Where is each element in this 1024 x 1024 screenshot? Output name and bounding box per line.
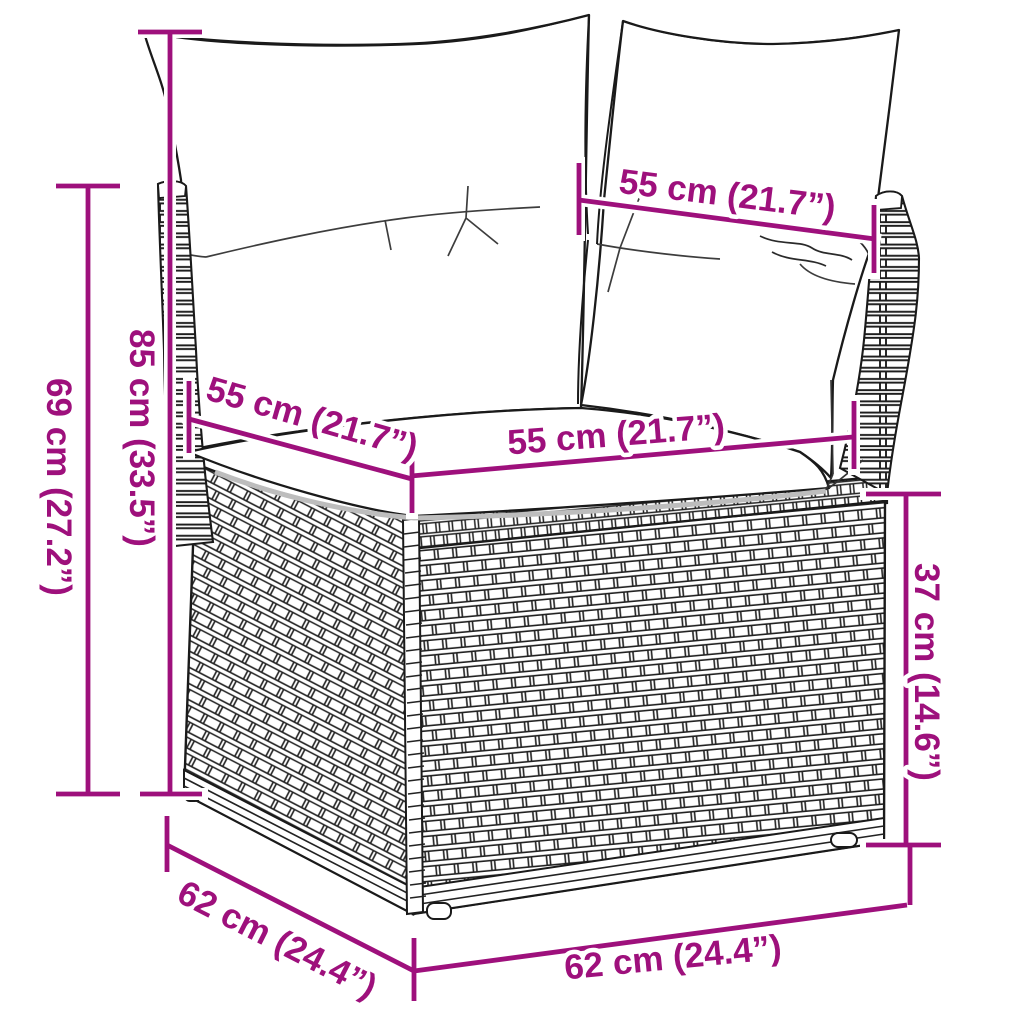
svg-text:37 cm (14.6”): 37 cm (14.6”) <box>907 563 946 781</box>
svg-text:85 cm (33.5”): 85 cm (33.5”) <box>122 329 161 547</box>
svg-text:69 cm (27.2”): 69 cm (27.2”) <box>39 378 78 596</box>
